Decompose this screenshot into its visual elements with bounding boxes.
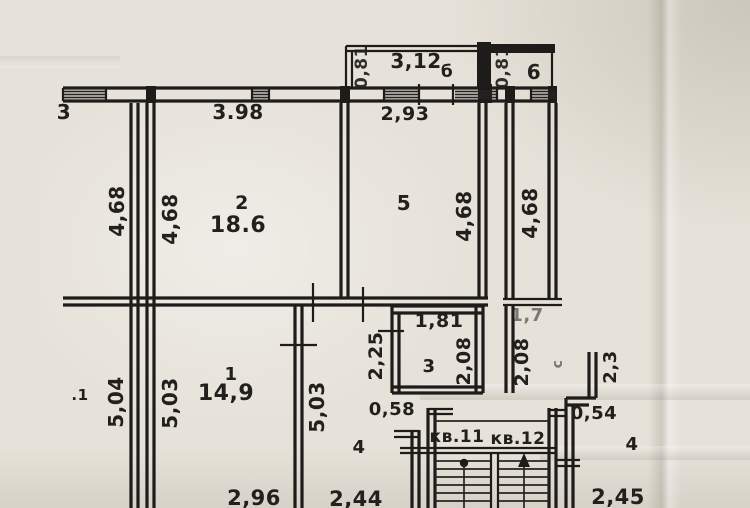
dim-outer-height-top: 4,68 bbox=[105, 185, 129, 236]
label-apartment-11: кв.11 bbox=[430, 427, 485, 447]
label-room2-area: 18.6 bbox=[210, 213, 266, 238]
label-room3-number: 3 bbox=[422, 356, 435, 377]
dim-neighbor-height: 4,68 bbox=[518, 187, 542, 238]
dim-room3-width: 1,81 bbox=[415, 310, 464, 332]
dim-outer-height-bottom: 5,04 bbox=[104, 376, 128, 427]
dim-room3-height: 2,08 bbox=[453, 337, 475, 386]
dim-bathroom-width: 1,7 bbox=[510, 305, 543, 326]
label-balcony-left: б bbox=[441, 62, 453, 82]
label-room5-number: 5 bbox=[397, 191, 411, 215]
label-balcony-right: 6 bbox=[527, 60, 541, 84]
dim-corridor-wall: 0,58 bbox=[369, 399, 415, 420]
dim-room1-height: 5,03 bbox=[158, 377, 182, 428]
dim-room5-height: 4,68 bbox=[452, 190, 476, 241]
dim-bathroom-niche: 2,3 bbox=[600, 350, 621, 383]
dim-corridor-height: 5,03 bbox=[305, 381, 329, 432]
label-bathroom: с bbox=[550, 360, 566, 369]
dim-room5-width: 2,93 bbox=[381, 103, 430, 125]
dim-balcony-left-depth: 0,81 bbox=[352, 45, 372, 89]
dim-room2-width: 3.98 bbox=[212, 100, 263, 124]
label-edge-mid-left: .1 bbox=[71, 386, 88, 404]
scanned-floor-plan-photo: 0,81 3,12 б 0,81 6 3 3.98 2,93 4,68 4,68… bbox=[0, 0, 750, 508]
staircase bbox=[435, 453, 549, 508]
dim-balcony-left-width: 3,12 bbox=[390, 49, 441, 73]
floor-plan-drawing: 0,81 3,12 б 0,81 6 3 3.98 2,93 4,68 4,68… bbox=[0, 0, 750, 508]
label-apartment-12: кв.12 bbox=[491, 429, 546, 449]
label-room4-number: 4 bbox=[352, 437, 365, 458]
dim-balcony-right-depth: 0,81 bbox=[493, 45, 513, 89]
dim-neighbor-width: 2,45 bbox=[591, 485, 645, 508]
label-neighbor-number: 4 bbox=[625, 434, 638, 455]
label-room1-area: 14,9 bbox=[198, 381, 254, 406]
dim-bathroom-height: 2,08 bbox=[511, 338, 533, 387]
stair-start-dot-icon bbox=[460, 459, 468, 467]
dim-room1-width: 2,96 bbox=[227, 486, 281, 508]
label-edge-top-left: 3 bbox=[57, 100, 71, 124]
stair-direction-arrow-icon bbox=[518, 453, 530, 467]
dim-corridor-width: 2,25 bbox=[365, 332, 387, 381]
dim-room4-width: 2,44 bbox=[329, 487, 383, 508]
dim-stairwell-wall: 0,54 bbox=[571, 403, 617, 424]
label-room2-number: 2 bbox=[235, 192, 249, 214]
dim-room2-height: 4,68 bbox=[158, 193, 182, 244]
